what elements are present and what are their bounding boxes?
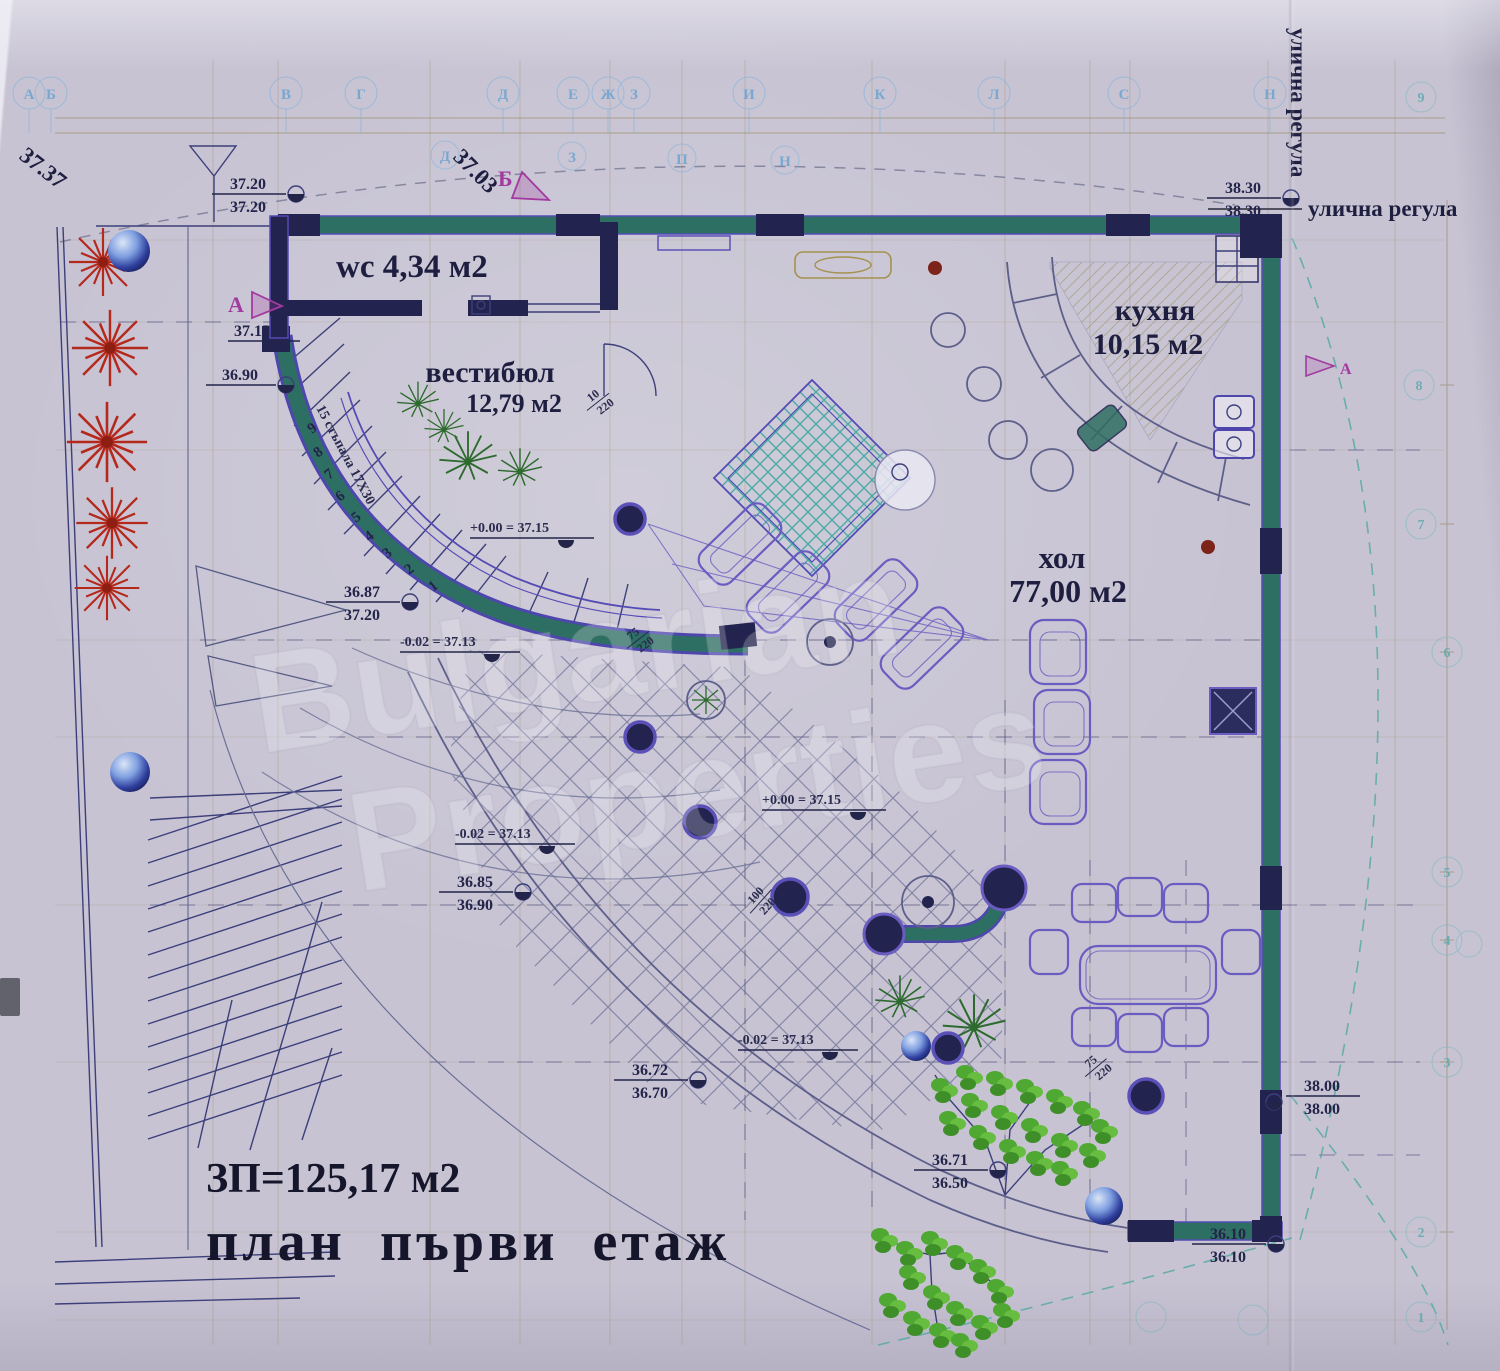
living-room-label: хол — [1039, 540, 1086, 575]
elev-top: 36.71 — [932, 1152, 968, 1169]
built-area-title: ЗП=125,17 м2 — [206, 1156, 460, 1202]
elevation-marker: 38.30 38.30 — [1207, 180, 1299, 220]
elev-top: 36.90 — [222, 367, 258, 384]
axis-letter: З — [630, 87, 638, 103]
red-shrub-row — [67, 228, 148, 620]
axis-letter: Н — [779, 154, 791, 170]
axis-number: 4 — [1444, 934, 1451, 949]
axis-numbers-right: 9 8 7 6 5 4 3 2 1 — [1416, 91, 1451, 1326]
axis-letter: Б — [46, 87, 56, 103]
site-corner-level: 37.37 — [15, 142, 71, 194]
level-note-text: -0.02 = 37.13 — [455, 827, 531, 842]
axis-number: 7 — [1418, 518, 1425, 533]
axis-letter: С — [1119, 87, 1130, 103]
section-a-letter: А — [228, 292, 244, 317]
blue-sphere-markers — [108, 230, 150, 792]
axis-number: 1 — [1418, 1311, 1425, 1326]
axis-letter: К — [875, 87, 886, 103]
section-a-right-letter: А — [1340, 361, 1352, 378]
dining-set — [1030, 878, 1260, 1052]
dim-fraction: 10 220 — [578, 381, 619, 422]
axis-letter: Д — [498, 87, 509, 103]
axis-bubbles-top — [13, 77, 1286, 133]
axis-letter: П — [676, 152, 688, 168]
level-note: +0.00 = 37.15 — [470, 521, 594, 548]
site-arc-level: 37.03 — [448, 144, 502, 198]
elev-bottom: 38.00 — [1304, 1101, 1340, 1118]
elev-top: 37.20 — [230, 176, 266, 193]
axis-letter: Г — [356, 87, 366, 103]
axis-number: 9 — [1418, 91, 1425, 106]
armchair-column — [1030, 620, 1256, 824]
wall-outlet-dot — [928, 261, 942, 275]
elev-top: 36.85 — [457, 874, 493, 891]
vestibule-area-label: 12,79 м2 — [466, 389, 562, 418]
paper-crease — [1288, 0, 1295, 1371]
elev-bottom: 36.10 — [1210, 1249, 1246, 1266]
section-a-level: 37.15 — [234, 323, 270, 340]
level-note-text: -0.02 = 37.13 — [400, 635, 476, 650]
plan-drawing: Bulgarian Properties wc 4,34 м2 вестибюл… — [0, 0, 1500, 1371]
axis-letter: Ж — [601, 87, 616, 103]
elev-bottom: 37.20 — [344, 607, 380, 624]
elev-top: 36.87 — [344, 584, 380, 601]
axis-letter: З — [568, 150, 576, 166]
level-note-text: -0.02 = 37.13 — [738, 1033, 814, 1048]
kitchen-area-label: 10,15 м2 — [1093, 328, 1203, 361]
floor-plan-photo: Bulgarian Properties wc 4,34 м2 вестибюл… — [0, 0, 1500, 1371]
axis-letter: А — [24, 87, 35, 103]
axis-number: 5 — [1444, 866, 1451, 881]
section-b-letter: Б — [498, 166, 513, 191]
elev-top: 36.72 — [632, 1062, 668, 1079]
vestibule-room-label: вестибюл — [425, 356, 554, 389]
elev-bottom: 36.50 — [932, 1175, 968, 1192]
wall-outlet-dot2 — [1201, 540, 1215, 554]
living-area-label: 77,00 м2 — [1009, 573, 1127, 609]
axis-letter: Л — [988, 87, 999, 103]
wc-room-label: wc 4,34 м2 — [336, 249, 488, 285]
elev-top: 38.30 — [1225, 180, 1261, 197]
section-marker-a-right: А — [1306, 356, 1352, 378]
plan-title: план първи етаж — [206, 1211, 730, 1273]
axis-letter: Е — [568, 87, 578, 103]
dim-fraction: 75 220 — [1076, 1047, 1117, 1088]
axis-letter: Д — [440, 149, 451, 165]
elev-top: 38.00 — [1304, 1078, 1340, 1095]
axis-number: 6 — [1444, 646, 1451, 661]
axis-letter: И — [743, 87, 755, 103]
axis-number: 2 — [1418, 1226, 1425, 1241]
axis-number: 3 — [1444, 1056, 1451, 1071]
kitchen-fittings — [931, 236, 1258, 505]
elev-bottom: 36.90 — [457, 897, 493, 914]
elev-bottom: 37.20 — [230, 199, 266, 216]
elev-bottom: 38.30 — [1225, 203, 1261, 220]
paper-clip-shadow — [0, 978, 20, 1016]
elev-top: 36.10 — [1210, 1226, 1246, 1243]
axis-number: 8 — [1416, 379, 1423, 394]
tv-bench — [795, 252, 891, 278]
level-note-text: +0.00 = 37.15 — [762, 793, 841, 808]
hatched-tree — [148, 776, 342, 1150]
level-note-text: +0.00 = 37.15 — [470, 521, 549, 536]
street-regulation-label: улична регула — [1308, 196, 1458, 221]
kitchen-room-label: кухня — [1115, 294, 1195, 327]
section-marker-b: Б — [498, 166, 549, 200]
axis-letter: Н — [1264, 87, 1276, 103]
axis-letter: В — [281, 87, 291, 103]
elev-bottom: 36.70 — [632, 1085, 668, 1102]
